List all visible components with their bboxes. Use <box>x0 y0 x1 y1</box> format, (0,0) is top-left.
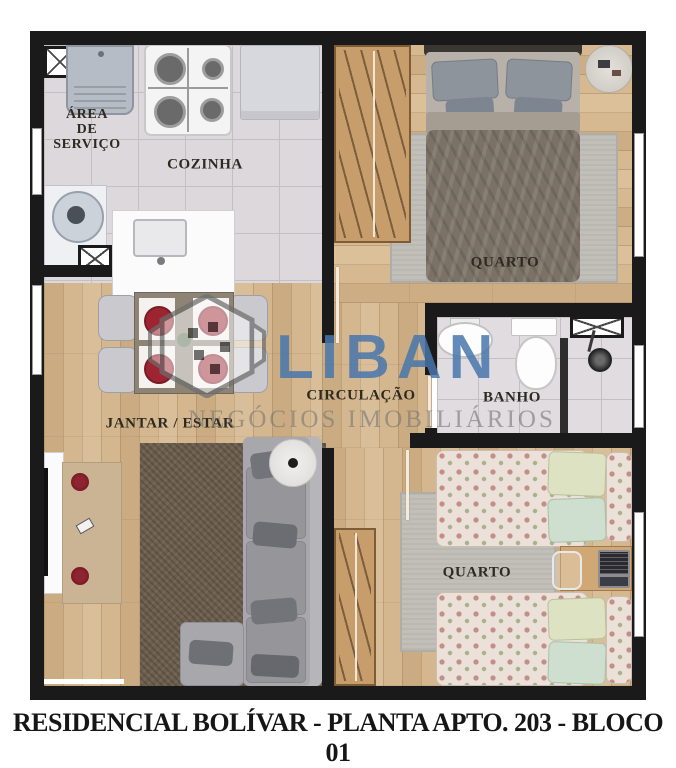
window-bedroom1 <box>634 133 644 257</box>
wall-bathroom-top <box>425 303 632 317</box>
pillow <box>547 641 606 685</box>
kitchen-sink <box>133 219 187 257</box>
bedroom2-door <box>406 450 409 520</box>
dining-chair <box>228 347 268 393</box>
bed2b-bolster <box>606 596 632 684</box>
living-window-sill <box>44 679 124 684</box>
bedroom1-wardrobe <box>334 45 411 243</box>
stove-grate <box>187 48 189 132</box>
burner-icon <box>154 96 186 128</box>
side-table <box>269 439 317 487</box>
pillow <box>547 597 606 641</box>
faucet-icon <box>157 257 165 265</box>
faucet-icon <box>98 51 104 57</box>
outer-wall-bottom <box>30 686 646 700</box>
room-label-bedroom1: QUARTO <box>471 255 540 272</box>
bedside-table <box>585 45 633 93</box>
window-service <box>32 128 42 195</box>
plate-icon <box>198 306 228 336</box>
room-label-service-line2: DE <box>77 122 98 138</box>
room-label-service-line3: SERVIÇO <box>53 137 121 153</box>
bedroom2-wardrobe <box>334 528 376 686</box>
remote-decor <box>76 518 95 535</box>
pillow <box>250 654 299 678</box>
room-label-living: JANTAR / ESTAR <box>106 416 235 433</box>
outer-wall-top <box>30 31 646 45</box>
stove <box>144 44 232 136</box>
pillow <box>252 521 298 549</box>
dining-chair <box>228 295 268 341</box>
burner-icon <box>154 53 186 85</box>
shower-partition <box>560 338 568 440</box>
laundry-sink <box>66 45 134 115</box>
dining-chair <box>98 295 138 341</box>
centerpiece-icon <box>177 333 191 347</box>
toilet-tank <box>511 318 557 336</box>
entry-runner-rug <box>62 462 122 604</box>
laptop-screen <box>600 577 628 586</box>
bedroom1-door <box>336 267 339 343</box>
shower-head-icon <box>588 348 612 372</box>
window-living <box>32 285 42 375</box>
plan-title: RESIDENCIAL BOLÍVAR - PLANTA APTO. 203 -… <box>0 708 676 768</box>
wardrobe-rail <box>373 51 375 237</box>
tv <box>44 468 48 576</box>
pillow <box>505 58 573 101</box>
dining-chair <box>98 347 138 393</box>
room-label-service-line1: ÁREA <box>66 107 108 123</box>
wall-living-bedroom2 <box>322 448 334 686</box>
flower-decor-icon <box>71 473 89 491</box>
laundry-sink-ridges <box>74 83 126 109</box>
burner-icon <box>200 98 224 122</box>
room-label-kitchen: COZINHA <box>167 157 243 174</box>
room-label-bedroom2: QUARTO <box>443 565 512 582</box>
wall-bedroom2-top <box>410 433 632 448</box>
side-table-decor <box>288 458 298 468</box>
laptop <box>598 550 630 588</box>
plate-icon <box>144 306 174 336</box>
washer-drum-icon <box>67 206 85 224</box>
dining-table <box>134 292 234 394</box>
bath-sink <box>437 322 493 358</box>
plate-icon <box>198 354 228 384</box>
room-label-hallway: CIRCULAÇÃO <box>306 388 415 405</box>
window-bedroom2 <box>634 512 644 637</box>
bed2a-bolster <box>606 452 632 542</box>
room-label-bathroom: BANHO <box>483 390 541 407</box>
wall-service-stub <box>44 265 112 277</box>
pillow <box>547 451 607 497</box>
duct-shaft-icon <box>570 316 624 338</box>
kitchen-counter <box>112 210 235 300</box>
pillow <box>188 639 234 666</box>
desk-chair <box>552 551 582 590</box>
refrigerator <box>240 45 320 120</box>
flower-decor-icon <box>71 567 89 585</box>
window-bathroom <box>634 345 644 428</box>
table-decor <box>598 60 610 68</box>
wall-kitchen-bedroom1 <box>322 45 334 343</box>
pillow <box>547 497 607 543</box>
burner-icon <box>202 58 224 80</box>
pillow <box>431 58 499 101</box>
wall-bathroom-left-upper <box>425 303 437 375</box>
sofa-chaise <box>180 622 244 686</box>
plate-icon <box>144 354 174 384</box>
wardrobe-rail <box>355 533 357 681</box>
table-decor <box>612 70 621 76</box>
floor-plan: ÁREA DE SERVIÇO COZINHA QUARTO CIRCULAÇÃ… <box>0 0 676 768</box>
toilet-bowl <box>515 336 557 390</box>
pillow <box>250 597 298 625</box>
laptop-keyboard <box>600 552 628 574</box>
stove-grate <box>148 87 228 89</box>
bathroom-door <box>428 376 431 426</box>
